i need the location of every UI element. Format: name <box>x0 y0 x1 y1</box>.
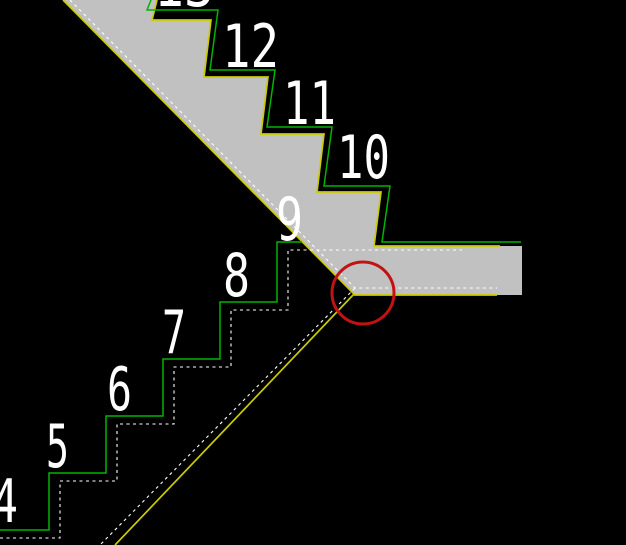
step-number-9: 9 <box>276 185 303 255</box>
stair-section-drawing: 13121110987654 <box>0 0 626 545</box>
step-number-7: 7 <box>162 298 186 368</box>
drawing-viewport[interactable]: 13121110987654 <box>0 0 626 545</box>
step-number-6: 6 <box>107 355 132 425</box>
step-number-11: 11 <box>283 69 336 139</box>
step-number-13: 13 <box>154 0 214 21</box>
step-number-8: 8 <box>223 241 250 311</box>
step-number-10: 10 <box>337 123 390 193</box>
step-number-12: 12 <box>222 12 279 82</box>
step-number-5: 5 <box>46 412 69 482</box>
step-number-4: 4 <box>0 467 18 537</box>
